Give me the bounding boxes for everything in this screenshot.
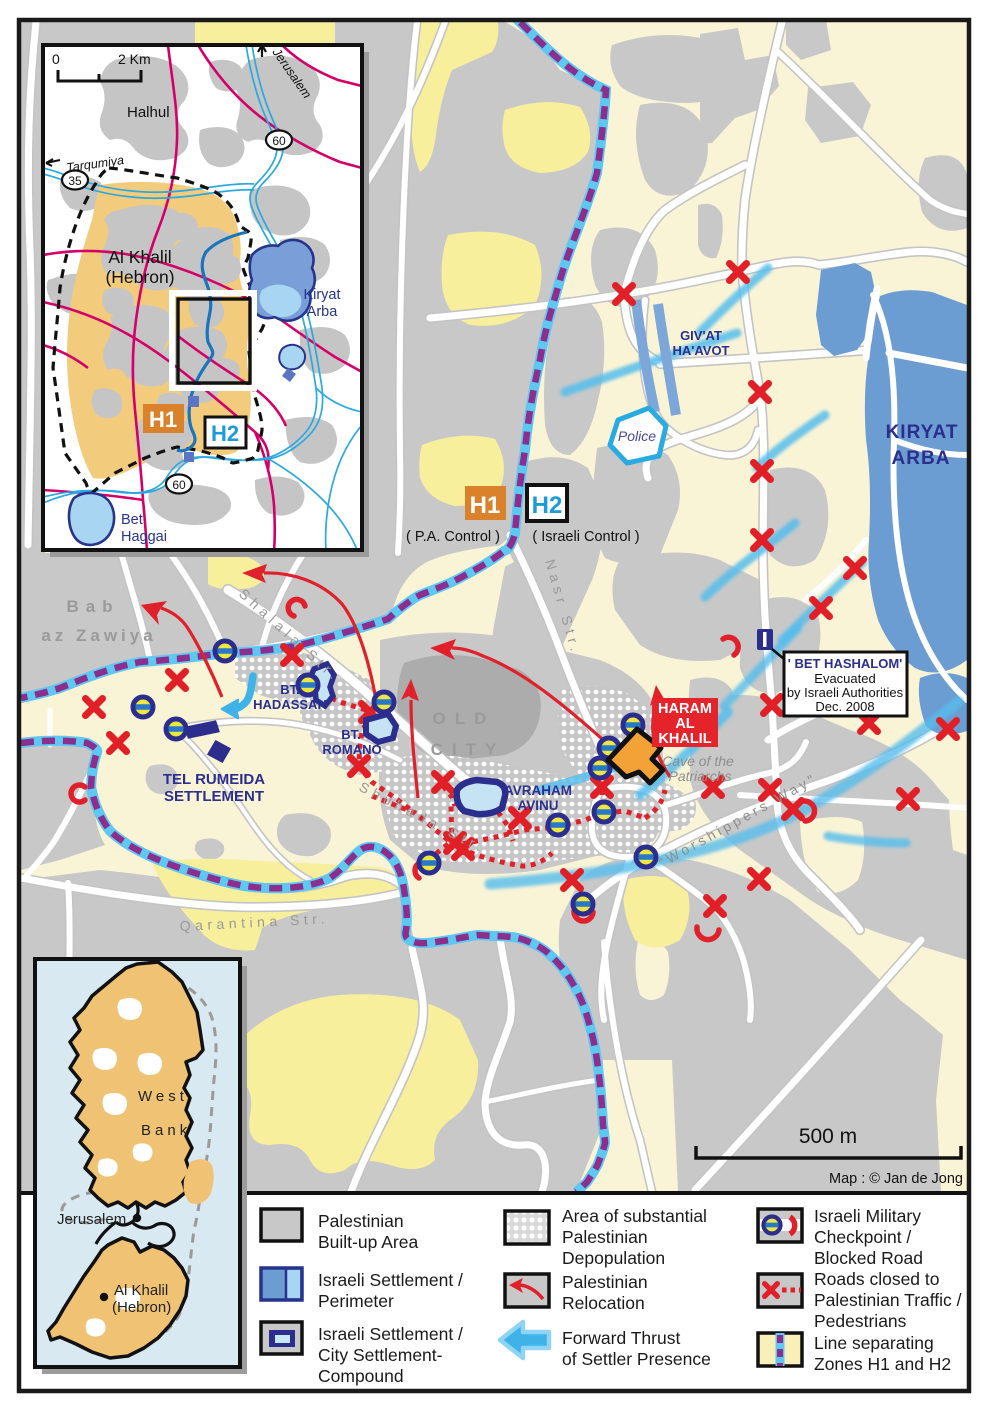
svg-text:Bet: Bet bbox=[121, 512, 143, 528]
svg-text:of Settler Presence: of Settler Presence bbox=[562, 1349, 711, 1369]
svg-text:BT.: BT. bbox=[341, 727, 361, 742]
svg-text:AVRAHAM: AVRAHAM bbox=[504, 783, 572, 798]
svg-text:AL: AL bbox=[675, 716, 694, 732]
svg-text:KIRYAT: KIRYAT bbox=[886, 422, 959, 443]
svg-text:Dec. 2008: Dec. 2008 bbox=[815, 699, 874, 714]
svg-text:ROMANO: ROMANO bbox=[322, 742, 381, 757]
svg-text:( P.A. Control ): ( P.A. Control ) bbox=[406, 529, 500, 545]
svg-text:KHALIL: KHALIL bbox=[658, 731, 711, 747]
svg-text:Kiryat: Kiryat bbox=[303, 287, 340, 303]
svg-text:( Israeli Control ): ( Israeli Control ) bbox=[532, 529, 639, 545]
svg-text:Map : © Jan de Jong: Map : © Jan de Jong bbox=[829, 1171, 963, 1187]
svg-text:(Hebron): (Hebron) bbox=[112, 1299, 171, 1316]
svg-text:Cave of the: Cave of the bbox=[662, 753, 734, 769]
svg-text:Compound: Compound bbox=[318, 1366, 404, 1386]
svg-text:(Hebron): (Hebron) bbox=[105, 267, 174, 287]
svg-text:West: West bbox=[138, 1088, 188, 1105]
svg-text:Patriarchs: Patriarchs bbox=[668, 768, 731, 784]
svg-text:Palestinian: Palestinian bbox=[562, 1272, 648, 1292]
svg-text:60: 60 bbox=[272, 134, 286, 148]
svg-text:' BET HASHALOM': ' BET HASHALOM' bbox=[788, 656, 903, 671]
svg-text:Halhul: Halhul bbox=[127, 104, 170, 121]
svg-text:Palestinian: Palestinian bbox=[562, 1227, 648, 1247]
svg-text:60: 60 bbox=[172, 478, 186, 492]
svg-text:Police: Police bbox=[618, 428, 656, 444]
svg-text:Depopulation: Depopulation bbox=[562, 1248, 665, 1268]
svg-text:Palestinian Traffic /: Palestinian Traffic / bbox=[814, 1290, 962, 1310]
svg-text:H2: H2 bbox=[211, 421, 239, 446]
svg-text:OLD: OLD bbox=[433, 709, 496, 728]
svg-text:CITY: CITY bbox=[431, 740, 506, 759]
svg-text:Evacuated: Evacuated bbox=[814, 671, 875, 686]
svg-text:Built-up Area: Built-up Area bbox=[318, 1232, 418, 1252]
svg-text:Checkpoint /: Checkpoint / bbox=[814, 1227, 911, 1247]
svg-text:0: 0 bbox=[52, 51, 60, 67]
svg-text:Perimeter: Perimeter bbox=[318, 1291, 394, 1311]
svg-text:Israeli Settlement /: Israeli Settlement / bbox=[318, 1324, 463, 1344]
svg-text:Haggai: Haggai bbox=[121, 529, 167, 545]
svg-text:Bank: Bank bbox=[141, 1122, 191, 1139]
svg-text:Blocked Road: Blocked Road bbox=[814, 1248, 923, 1268]
svg-text:HARAM: HARAM bbox=[658, 701, 712, 717]
svg-text:Israeli Military: Israeli Military bbox=[814, 1206, 921, 1226]
svg-text:Al Khalil: Al Khalil bbox=[114, 1282, 168, 1299]
svg-text:ARBA: ARBA bbox=[892, 448, 951, 469]
svg-text:az Zawiya: az Zawiya bbox=[41, 626, 156, 645]
svg-text:Palestinian: Palestinian bbox=[318, 1211, 404, 1231]
svg-text:H1: H1 bbox=[470, 492, 501, 519]
svg-text:H2: H2 bbox=[532, 492, 563, 519]
svg-text:Al Khalil: Al Khalil bbox=[108, 247, 171, 267]
svg-text:City Settlement-: City Settlement- bbox=[318, 1345, 443, 1365]
svg-text:by Israeli Authorities: by Israeli Authorities bbox=[787, 685, 904, 700]
svg-text:SETTLEMENT: SETTLEMENT bbox=[164, 788, 264, 805]
svg-text:AVINU: AVINU bbox=[517, 798, 558, 813]
svg-text:Arba: Arba bbox=[307, 304, 339, 320]
svg-text:Line separating: Line separating bbox=[814, 1333, 934, 1353]
svg-text:Israeli Settlement /: Israeli Settlement / bbox=[318, 1270, 463, 1290]
svg-text:BT.: BT. bbox=[280, 682, 300, 697]
svg-text:Zones H1 and H2: Zones H1 and H2 bbox=[814, 1354, 951, 1374]
svg-text:Pedestrians: Pedestrians bbox=[814, 1311, 907, 1331]
svg-text:GIV'AT: GIV'AT bbox=[680, 328, 722, 343]
svg-text:Roads closed to: Roads closed to bbox=[814, 1269, 940, 1289]
svg-text:500 m: 500 m bbox=[799, 1125, 857, 1148]
svg-text:Relocation: Relocation bbox=[562, 1293, 645, 1313]
svg-text:H1: H1 bbox=[149, 407, 177, 432]
svg-text:Area of substantial: Area of substantial bbox=[562, 1206, 707, 1226]
svg-text:HA'AVOT: HA'AVOT bbox=[672, 343, 729, 358]
svg-text:35: 35 bbox=[68, 174, 82, 188]
svg-text:Bab: Bab bbox=[66, 597, 119, 616]
svg-text:HADASSAH: HADASSAH bbox=[253, 697, 327, 712]
svg-text:Forward Thrust: Forward Thrust bbox=[562, 1328, 680, 1348]
svg-text:Jerusalem: Jerusalem bbox=[57, 1211, 126, 1228]
svg-text:TEL RUMEIDA: TEL RUMEIDA bbox=[163, 771, 265, 788]
svg-text:2 Km: 2 Km bbox=[118, 51, 151, 67]
